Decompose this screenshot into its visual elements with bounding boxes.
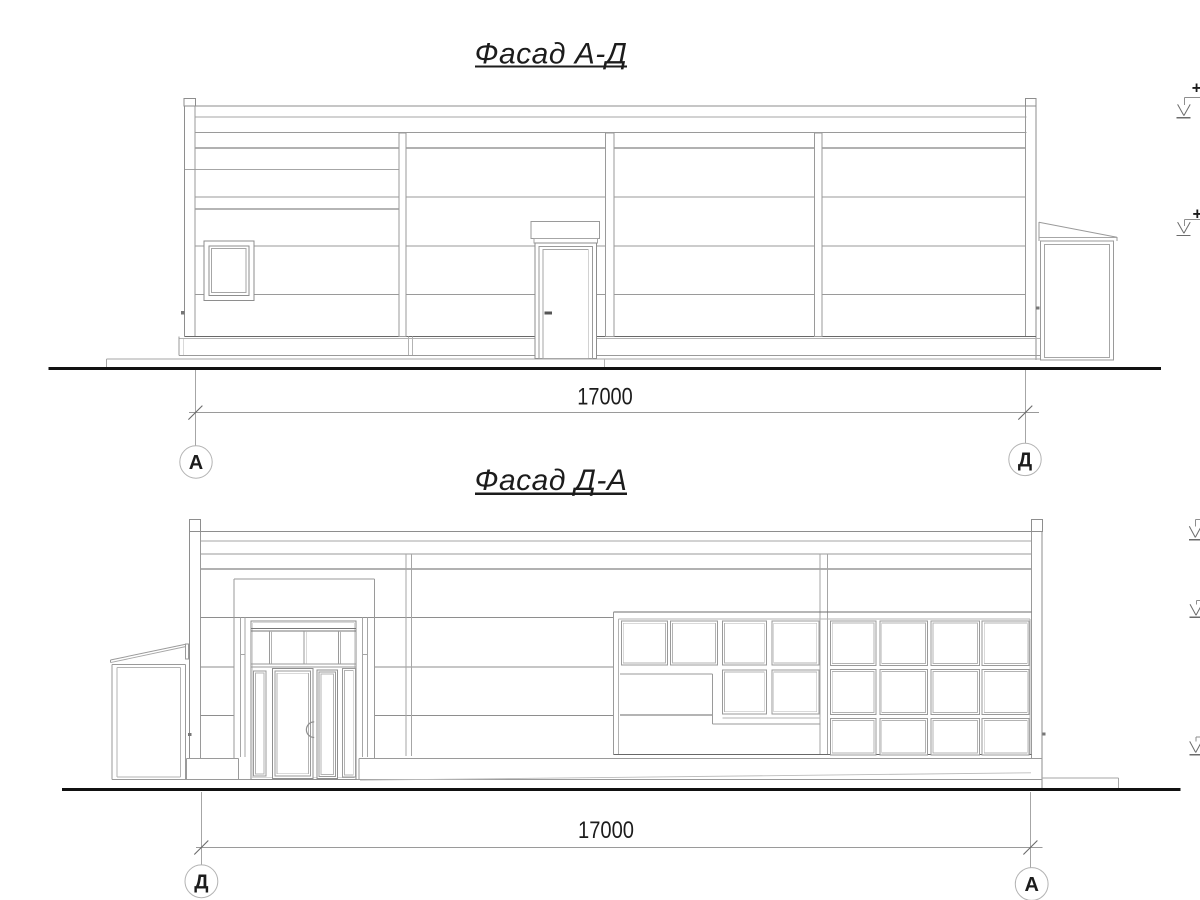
svg-text:17000: 17000 (577, 384, 633, 411)
svg-text:Фасад А-Д: Фасад А-Д (475, 37, 628, 70)
svg-text:Д: Д (194, 872, 208, 894)
svg-text:+: + (1193, 205, 1200, 223)
svg-text:+: + (1192, 80, 1200, 98)
svg-text:Д: Д (1018, 450, 1032, 472)
svg-text:А: А (1024, 874, 1038, 896)
svg-text:А: А (189, 452, 203, 474)
svg-text:17000: 17000 (578, 817, 634, 844)
svg-text:Фасад Д-А: Фасад Д-А (475, 464, 628, 497)
